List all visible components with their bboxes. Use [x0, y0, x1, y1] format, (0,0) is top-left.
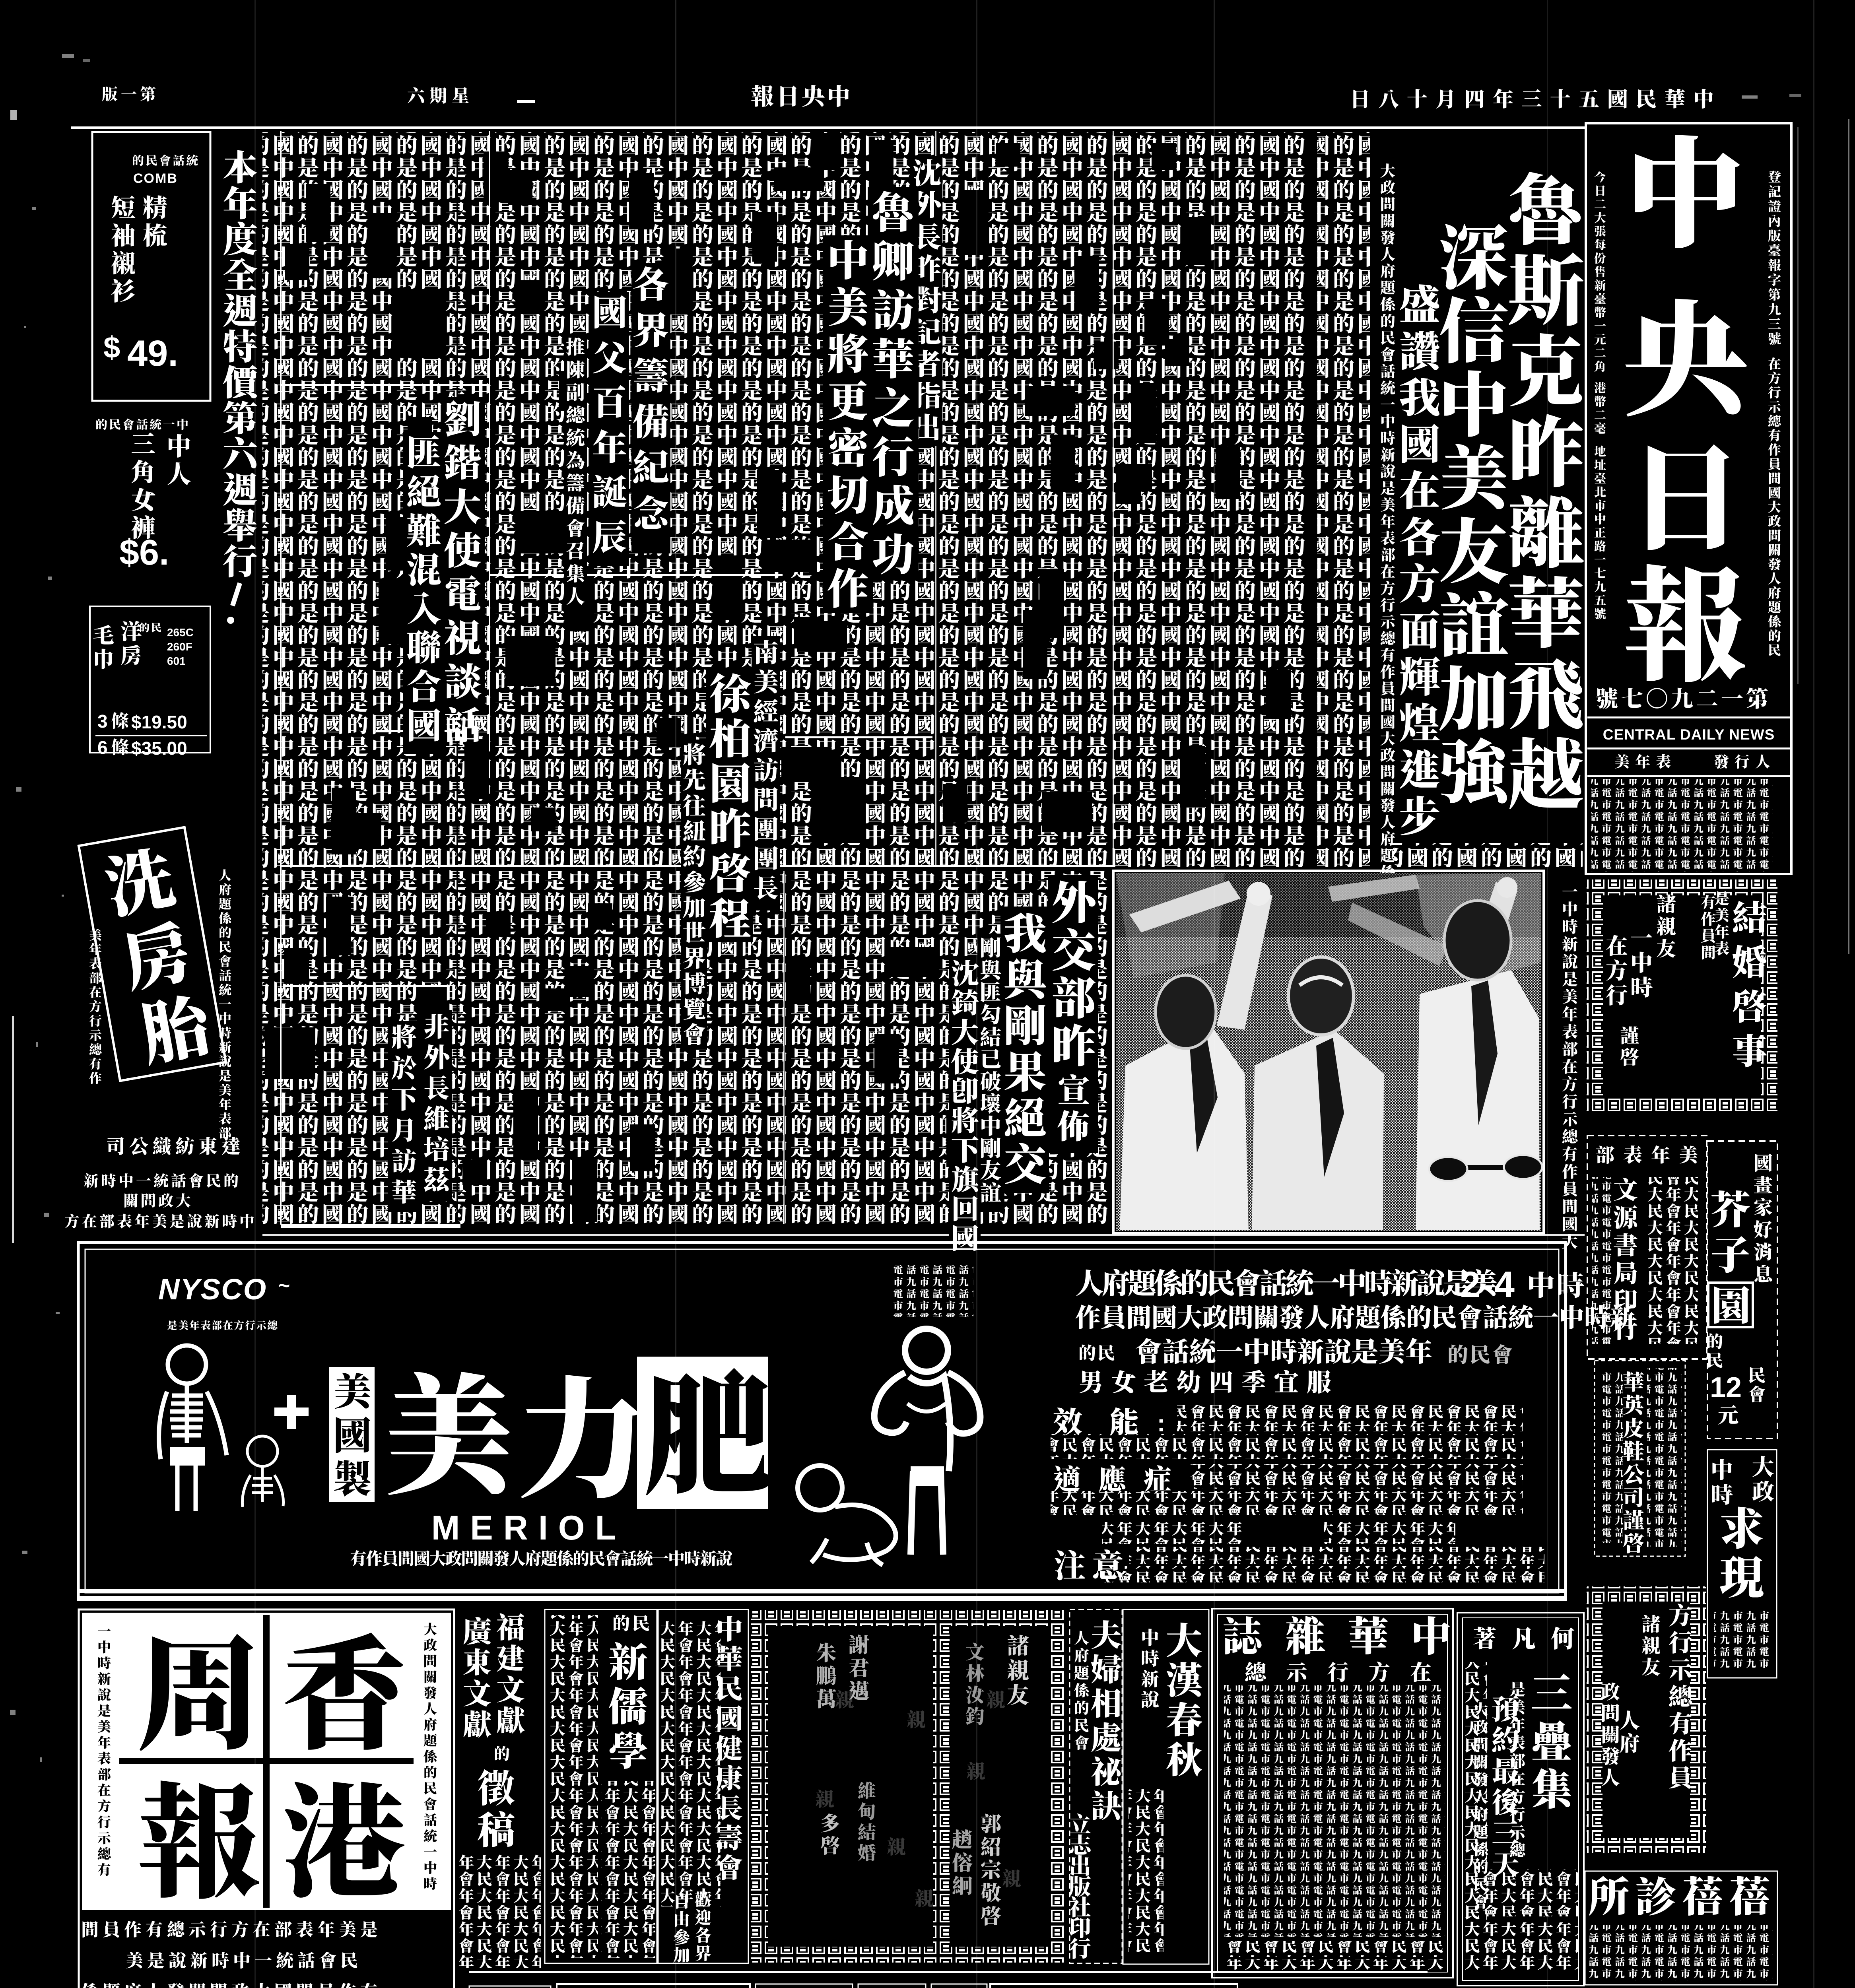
svg-text:CENTRAL DAILY NEWS: CENTRAL DAILY NEWS [1603, 726, 1775, 743]
svg-text:$: $ [103, 331, 120, 365]
svg-text:265C: 265C [167, 626, 194, 639]
svg-text:~: ~ [278, 1274, 290, 1297]
svg-text:NYSCO: NYSCO [158, 1273, 267, 1306]
svg-text:260F: 260F [167, 641, 192, 653]
svg-text:3: 3 [97, 711, 108, 732]
svg-text:12: 12 [1710, 1372, 1742, 1404]
svg-text:$35.00: $35.00 [131, 738, 187, 759]
svg-text:601: 601 [167, 655, 186, 667]
svg-text:$6.: $6. [119, 533, 169, 573]
svg-text:COMB: COMB [133, 171, 178, 186]
svg-text:MERIOL: MERIOL [431, 1509, 626, 1547]
svg-text:2-4: 2-4 [1460, 1264, 1515, 1305]
svg-text:49.: 49. [127, 333, 178, 374]
svg-text:6: 6 [97, 737, 108, 758]
svg-text:$19.50: $19.50 [131, 712, 187, 732]
svg-text::: : [1157, 1410, 1165, 1437]
